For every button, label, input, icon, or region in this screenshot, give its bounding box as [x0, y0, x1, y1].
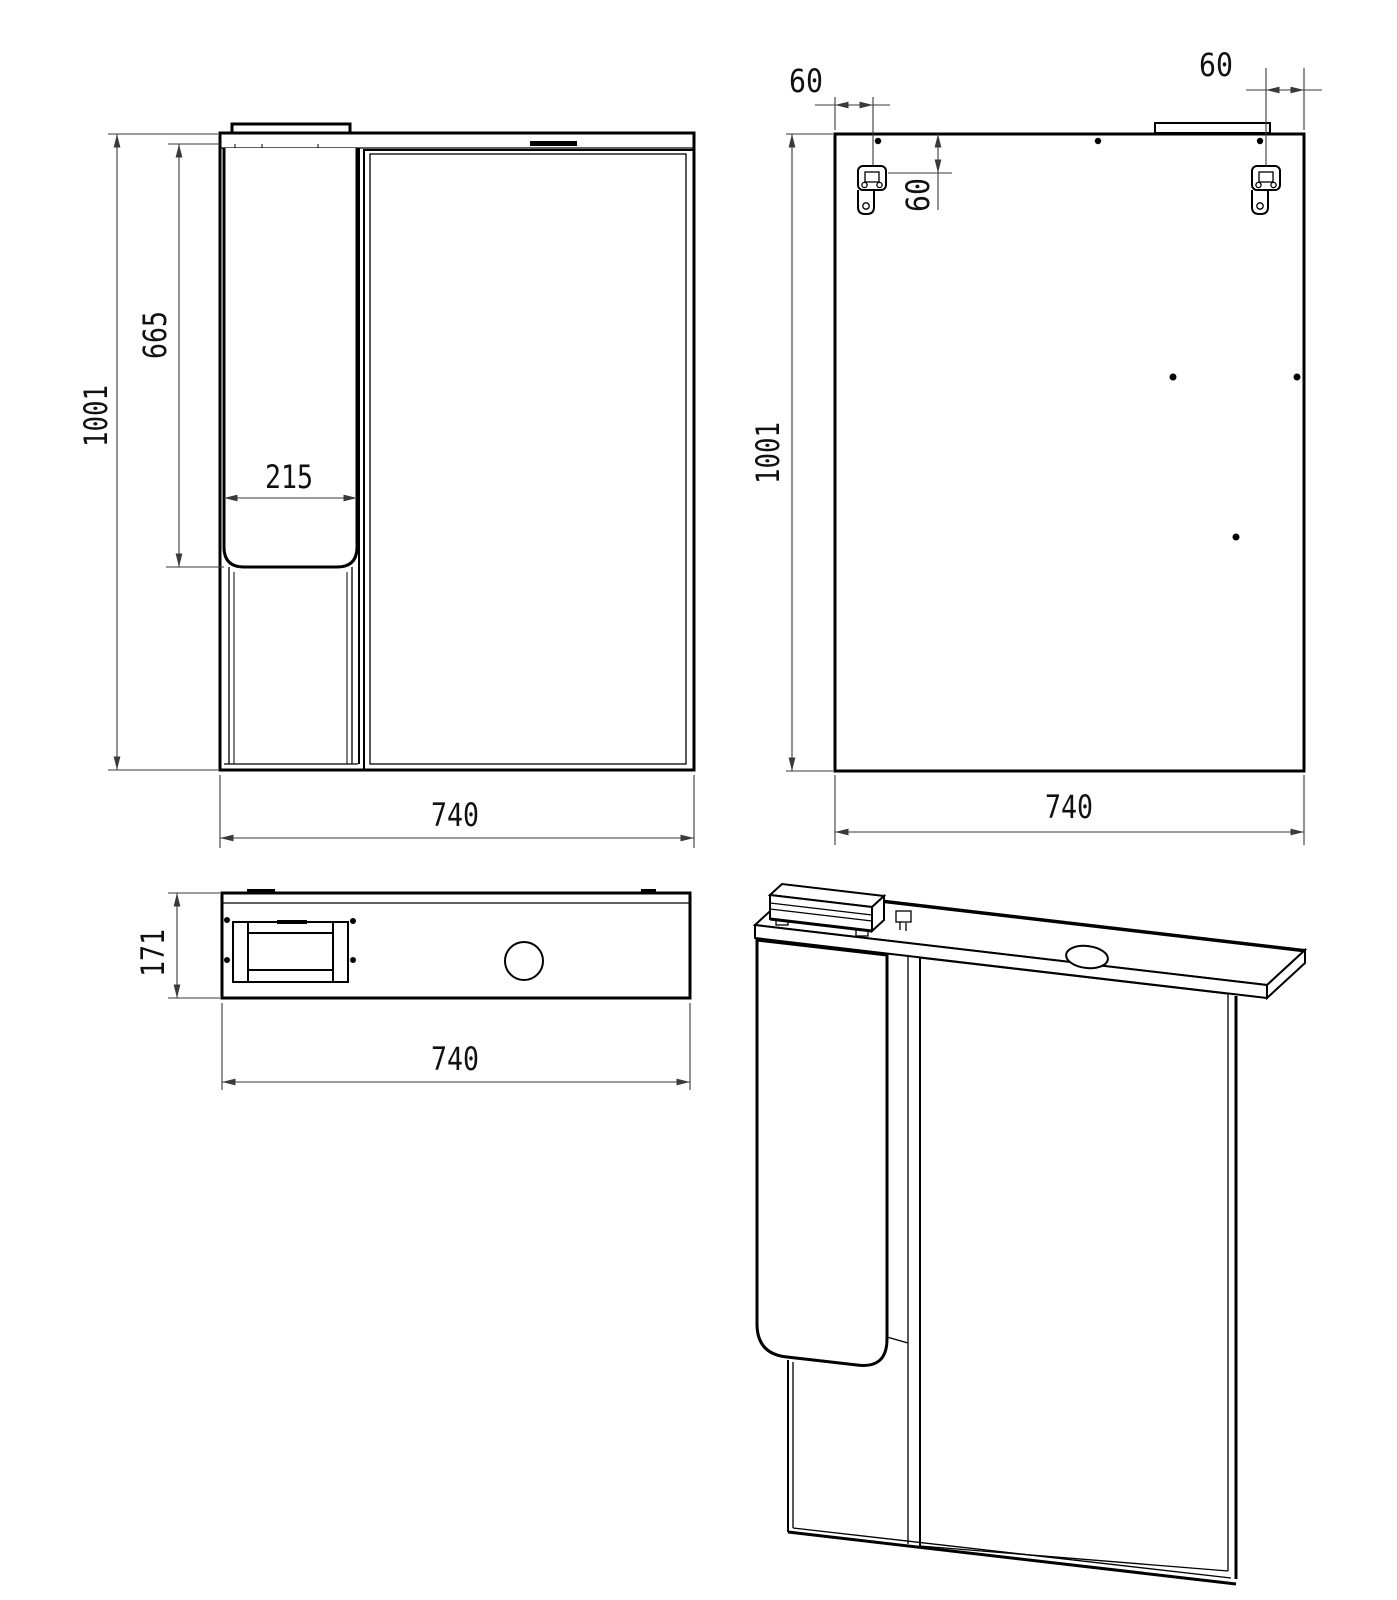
- back-right-inset-label: 60: [1199, 46, 1233, 84]
- back-panel: [835, 134, 1304, 771]
- back-lamp-fixture: [1155, 123, 1270, 134]
- front-view: 1001 665 215 740: [77, 124, 694, 848]
- top-depth-label: 171: [134, 929, 172, 977]
- front-shelf-lamp-slot: [530, 141, 577, 146]
- front-height-label: 1001: [77, 385, 115, 447]
- front-door-width-label: 215: [265, 458, 313, 496]
- back-view: 60 60 60 1001 740: [749, 46, 1322, 845]
- top-lamp-frame: [224, 917, 356, 982]
- top-width-label: 740: [431, 1040, 479, 1078]
- technical-drawing: 1001 665 215 740: [0, 0, 1397, 1600]
- back-width-label: 740: [1045, 788, 1093, 826]
- top-wire-hole: [505, 942, 543, 980]
- back-top-offset-label: 60: [899, 178, 937, 212]
- iso-cabinet-body: [757, 940, 1236, 1584]
- back-left-inset-label: 60: [789, 62, 823, 100]
- top-view: 171 740: [134, 889, 690, 1090]
- front-width-label: 740: [431, 796, 479, 834]
- front-door-height-label: 665: [136, 311, 174, 359]
- front-door-panel: [224, 148, 357, 567]
- drawing-sheet: 1001 665 215 740: [0, 0, 1397, 1600]
- isometric-view: [755, 884, 1305, 1584]
- iso-door-panel: [757, 940, 887, 1365]
- back-height-label: 1001: [749, 422, 787, 484]
